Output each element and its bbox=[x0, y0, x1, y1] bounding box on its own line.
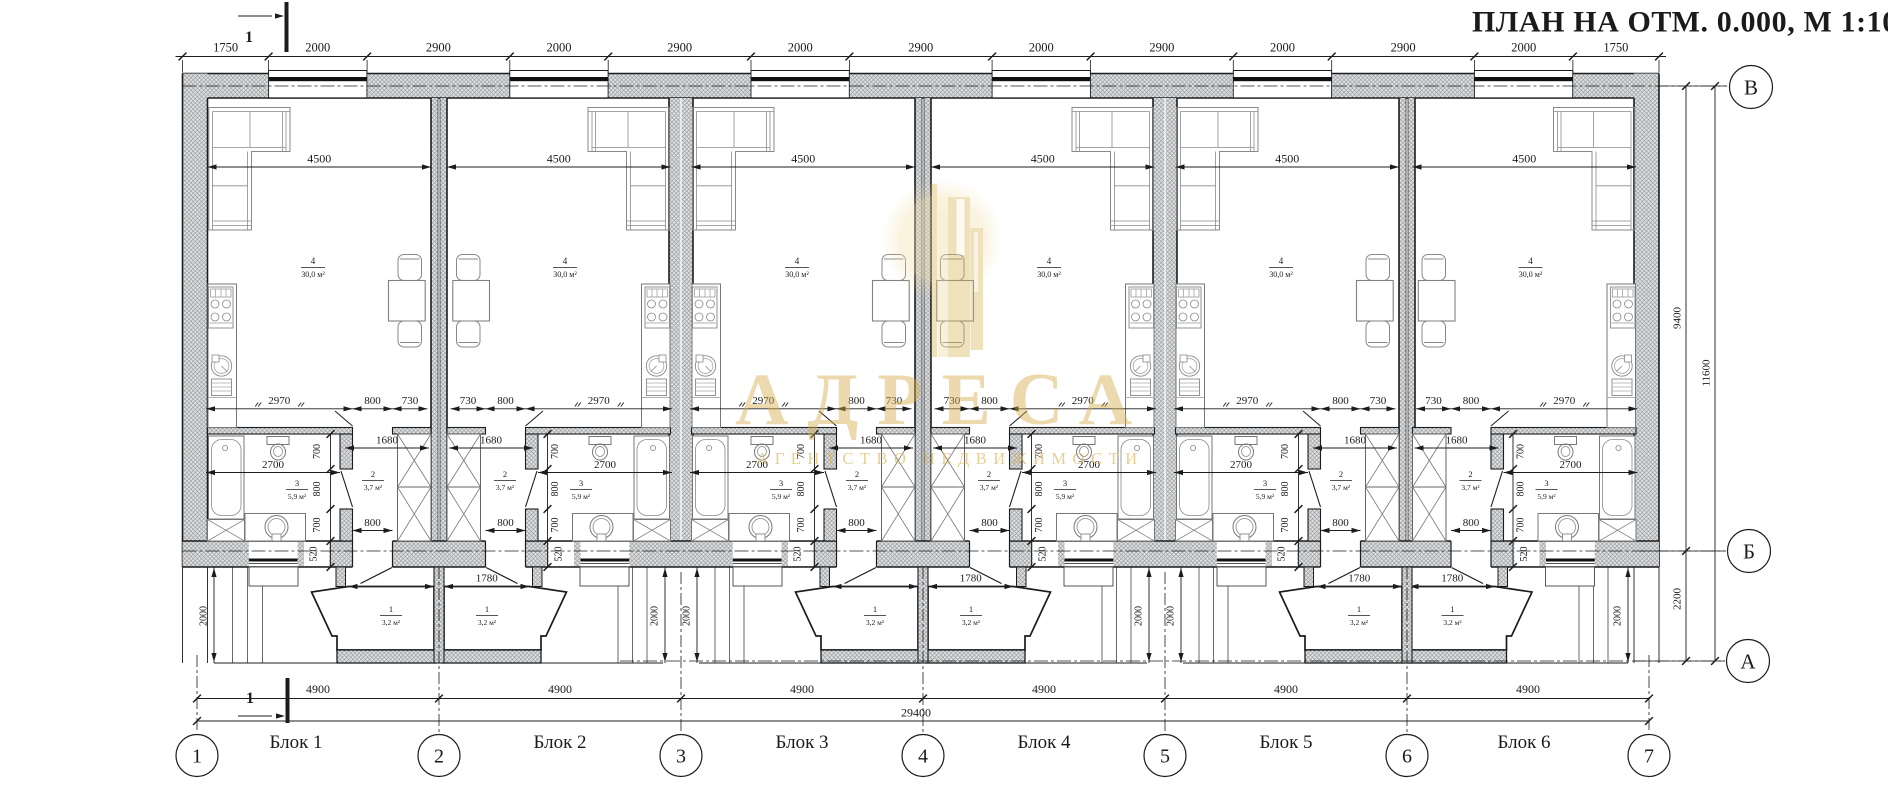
svg-text:В: В bbox=[1744, 76, 1758, 100]
svg-text:5,9 м²: 5,9 м² bbox=[1256, 492, 1275, 501]
svg-text:4500: 4500 bbox=[1031, 152, 1055, 166]
svg-text:800: 800 bbox=[550, 482, 561, 497]
svg-text:А: А bbox=[1740, 650, 1756, 674]
svg-text:730: 730 bbox=[1425, 395, 1442, 407]
svg-text:800: 800 bbox=[1034, 482, 1045, 497]
svg-text:Блок 6: Блок 6 bbox=[1497, 732, 1550, 753]
svg-text:800: 800 bbox=[1332, 517, 1349, 529]
svg-text:4900: 4900 bbox=[1032, 682, 1056, 696]
svg-text:5: 5 bbox=[1160, 746, 1170, 768]
svg-text:2000: 2000 bbox=[650, 606, 661, 626]
svg-text:700: 700 bbox=[796, 518, 807, 533]
svg-text:700: 700 bbox=[1280, 518, 1291, 533]
svg-text:2970: 2970 bbox=[268, 395, 291, 407]
svg-text:3,7 м²: 3,7 м² bbox=[980, 483, 999, 492]
svg-text:800: 800 bbox=[981, 517, 998, 529]
svg-text:30,0 м²: 30,0 м² bbox=[553, 270, 577, 279]
svg-text:800: 800 bbox=[497, 395, 514, 407]
svg-text:1: 1 bbox=[245, 29, 253, 46]
svg-text:4: 4 bbox=[918, 746, 928, 768]
svg-text:1: 1 bbox=[389, 604, 393, 614]
svg-text:3: 3 bbox=[676, 746, 686, 768]
svg-text:2000: 2000 bbox=[199, 606, 210, 626]
svg-text:4900: 4900 bbox=[790, 682, 814, 696]
svg-text:2000: 2000 bbox=[1029, 41, 1054, 55]
svg-text:АГЕНТСТВО НЕДВИЖИМОСТИ: АГЕНТСТВО НЕДВИЖИМОСТИ bbox=[756, 449, 1143, 468]
svg-text:520: 520 bbox=[309, 547, 320, 562]
svg-text:2700: 2700 bbox=[262, 459, 285, 471]
svg-text:5,9 м²: 5,9 м² bbox=[288, 492, 307, 501]
svg-text:700: 700 bbox=[1034, 518, 1045, 533]
svg-text:2700: 2700 bbox=[1560, 459, 1583, 471]
svg-text:4500: 4500 bbox=[307, 152, 331, 166]
svg-text:3: 3 bbox=[1263, 478, 1267, 488]
svg-text:4500: 4500 bbox=[1512, 152, 1536, 166]
svg-text:700: 700 bbox=[312, 518, 323, 533]
svg-text:2700: 2700 bbox=[1230, 459, 1253, 471]
svg-text:800: 800 bbox=[1280, 482, 1291, 497]
svg-text:30,0 м²: 30,0 м² bbox=[301, 270, 325, 279]
svg-text:4500: 4500 bbox=[547, 152, 571, 166]
svg-text:2970: 2970 bbox=[588, 395, 611, 407]
svg-text:2700: 2700 bbox=[594, 459, 617, 471]
svg-text:4: 4 bbox=[563, 256, 568, 266]
svg-text:800: 800 bbox=[364, 395, 381, 407]
svg-text:Блок 3: Блок 3 bbox=[775, 732, 828, 753]
svg-text:1780: 1780 bbox=[1441, 573, 1464, 585]
svg-text:29400: 29400 bbox=[901, 706, 931, 720]
svg-text:700: 700 bbox=[550, 518, 561, 533]
svg-text:2000: 2000 bbox=[1166, 606, 1177, 626]
svg-text:4: 4 bbox=[1528, 256, 1533, 266]
svg-text:4500: 4500 bbox=[791, 152, 815, 166]
svg-text:4: 4 bbox=[311, 256, 316, 266]
svg-text:5,9 м²: 5,9 м² bbox=[1056, 492, 1075, 501]
svg-text:5,9 м²: 5,9 м² bbox=[772, 492, 791, 501]
svg-text:2000: 2000 bbox=[547, 41, 572, 55]
svg-text:800: 800 bbox=[1463, 517, 1480, 529]
svg-text:2000: 2000 bbox=[305, 41, 330, 55]
svg-text:1750: 1750 bbox=[213, 41, 238, 55]
svg-text:2: 2 bbox=[503, 469, 507, 479]
svg-text:Блок 1: Блок 1 bbox=[269, 732, 322, 753]
svg-text:800: 800 bbox=[497, 517, 514, 529]
svg-text:1680: 1680 bbox=[1446, 435, 1469, 447]
svg-text:3,2 м²: 3,2 м² bbox=[1443, 618, 1462, 627]
svg-text:3,7 м²: 3,7 м² bbox=[364, 483, 383, 492]
svg-text:4: 4 bbox=[1279, 256, 1284, 266]
svg-text:2000: 2000 bbox=[1270, 41, 1295, 55]
svg-text:30,0 м²: 30,0 м² bbox=[1269, 270, 1293, 279]
svg-text:1: 1 bbox=[873, 604, 877, 614]
svg-text:2: 2 bbox=[434, 746, 444, 768]
svg-text:1: 1 bbox=[1450, 604, 1454, 614]
svg-text:3,7 м²: 3,7 м² bbox=[1461, 483, 1480, 492]
svg-text:2: 2 bbox=[371, 469, 375, 479]
svg-text:4900: 4900 bbox=[1274, 682, 1298, 696]
svg-text:1: 1 bbox=[1357, 604, 1361, 614]
svg-text:3: 3 bbox=[1063, 478, 1067, 488]
svg-text:3,7 м²: 3,7 м² bbox=[848, 483, 867, 492]
svg-text:700: 700 bbox=[1280, 444, 1291, 459]
svg-text:6: 6 bbox=[1402, 746, 1412, 768]
svg-text:520: 520 bbox=[554, 547, 565, 562]
svg-text:520: 520 bbox=[1519, 547, 1530, 562]
svg-text:1: 1 bbox=[969, 604, 973, 614]
svg-text:4500: 4500 bbox=[1275, 152, 1299, 166]
svg-text:2900: 2900 bbox=[1149, 41, 1174, 55]
svg-text:3,2 м²: 3,2 м² bbox=[382, 618, 401, 627]
svg-text:2970: 2970 bbox=[1236, 395, 1259, 407]
svg-text:3,2 м²: 3,2 м² bbox=[866, 618, 885, 627]
svg-text:4: 4 bbox=[795, 256, 800, 266]
svg-text:1680: 1680 bbox=[376, 435, 399, 447]
svg-text:1680: 1680 bbox=[1344, 435, 1367, 447]
svg-text:1780: 1780 bbox=[476, 573, 499, 585]
svg-text:700: 700 bbox=[1516, 444, 1527, 459]
svg-text:4900: 4900 bbox=[306, 682, 330, 696]
svg-text:2000: 2000 bbox=[1511, 41, 1536, 55]
svg-text:АДРЕСА: АДРЕСА bbox=[735, 359, 1151, 441]
svg-text:2900: 2900 bbox=[1391, 41, 1416, 55]
svg-text:ПЛАН НА ОТМ. 0.000, М 1:100: ПЛАН НА ОТМ. 0.000, М 1:100 bbox=[1472, 6, 1888, 39]
svg-text:800: 800 bbox=[1516, 482, 1527, 497]
svg-text:3,7 м²: 3,7 м² bbox=[1332, 483, 1351, 492]
svg-text:Б: Б bbox=[1743, 540, 1755, 564]
svg-text:Блок 2: Блок 2 bbox=[533, 732, 586, 753]
svg-text:2000: 2000 bbox=[1613, 606, 1624, 626]
svg-text:3: 3 bbox=[295, 478, 299, 488]
svg-text:3,2 м²: 3,2 м² bbox=[962, 618, 981, 627]
svg-text:730: 730 bbox=[402, 395, 419, 407]
svg-text:4: 4 bbox=[1047, 256, 1052, 266]
svg-text:520: 520 bbox=[1038, 547, 1049, 562]
svg-text:2: 2 bbox=[855, 469, 859, 479]
svg-text:2: 2 bbox=[1468, 469, 1472, 479]
svg-text:2000: 2000 bbox=[1134, 606, 1145, 626]
svg-text:730: 730 bbox=[460, 395, 477, 407]
svg-text:2900: 2900 bbox=[426, 41, 451, 55]
svg-text:800: 800 bbox=[796, 482, 807, 497]
svg-text:2000: 2000 bbox=[788, 41, 813, 55]
svg-text:1680: 1680 bbox=[480, 435, 503, 447]
svg-text:700: 700 bbox=[1516, 518, 1527, 533]
svg-text:3,2 м²: 3,2 м² bbox=[478, 618, 497, 627]
svg-text:9400: 9400 bbox=[1672, 307, 1684, 330]
svg-text:800: 800 bbox=[848, 517, 865, 529]
svg-text:700: 700 bbox=[312, 444, 323, 459]
svg-text:4900: 4900 bbox=[1516, 682, 1540, 696]
svg-text:1: 1 bbox=[485, 604, 489, 614]
svg-text:Блок 4: Блок 4 bbox=[1017, 732, 1071, 753]
svg-text:1750: 1750 bbox=[1603, 41, 1628, 55]
svg-text:30,0 м²: 30,0 м² bbox=[1037, 270, 1061, 279]
svg-text:4900: 4900 bbox=[548, 682, 572, 696]
svg-text:30,0 м²: 30,0 м² bbox=[1519, 270, 1543, 279]
svg-text:2970: 2970 bbox=[1553, 395, 1576, 407]
svg-text:2900: 2900 bbox=[908, 41, 933, 55]
svg-text:520: 520 bbox=[1277, 547, 1288, 562]
svg-text:5,9 м²: 5,9 м² bbox=[1537, 492, 1556, 501]
svg-text:Блок 5: Блок 5 bbox=[1259, 732, 1312, 753]
svg-text:2200: 2200 bbox=[1672, 588, 1684, 611]
svg-text:3: 3 bbox=[579, 478, 583, 488]
svg-text:3,7 м²: 3,7 м² bbox=[496, 483, 515, 492]
svg-text:520: 520 bbox=[793, 547, 804, 562]
svg-text:800: 800 bbox=[364, 517, 381, 529]
svg-text:2: 2 bbox=[987, 469, 991, 479]
svg-text:700: 700 bbox=[550, 444, 561, 459]
svg-text:800: 800 bbox=[1332, 395, 1349, 407]
svg-text:30,0 м²: 30,0 м² bbox=[785, 270, 809, 279]
svg-text:3: 3 bbox=[1544, 478, 1548, 488]
svg-text:5,9 м²: 5,9 м² bbox=[572, 492, 591, 501]
svg-text:800: 800 bbox=[312, 482, 323, 497]
svg-text:2900: 2900 bbox=[667, 41, 692, 55]
svg-text:2000: 2000 bbox=[682, 606, 693, 626]
svg-text:7: 7 bbox=[1644, 746, 1654, 768]
svg-text:3,2 м²: 3,2 м² bbox=[1350, 618, 1369, 627]
svg-text:1780: 1780 bbox=[1348, 573, 1371, 585]
svg-text:1: 1 bbox=[192, 746, 202, 768]
svg-text:2: 2 bbox=[1339, 469, 1343, 479]
svg-text:730: 730 bbox=[1370, 395, 1387, 407]
svg-text:11600: 11600 bbox=[1701, 359, 1713, 387]
svg-text:3: 3 bbox=[779, 478, 783, 488]
svg-text:800: 800 bbox=[1463, 395, 1480, 407]
svg-text:1780: 1780 bbox=[960, 573, 983, 585]
